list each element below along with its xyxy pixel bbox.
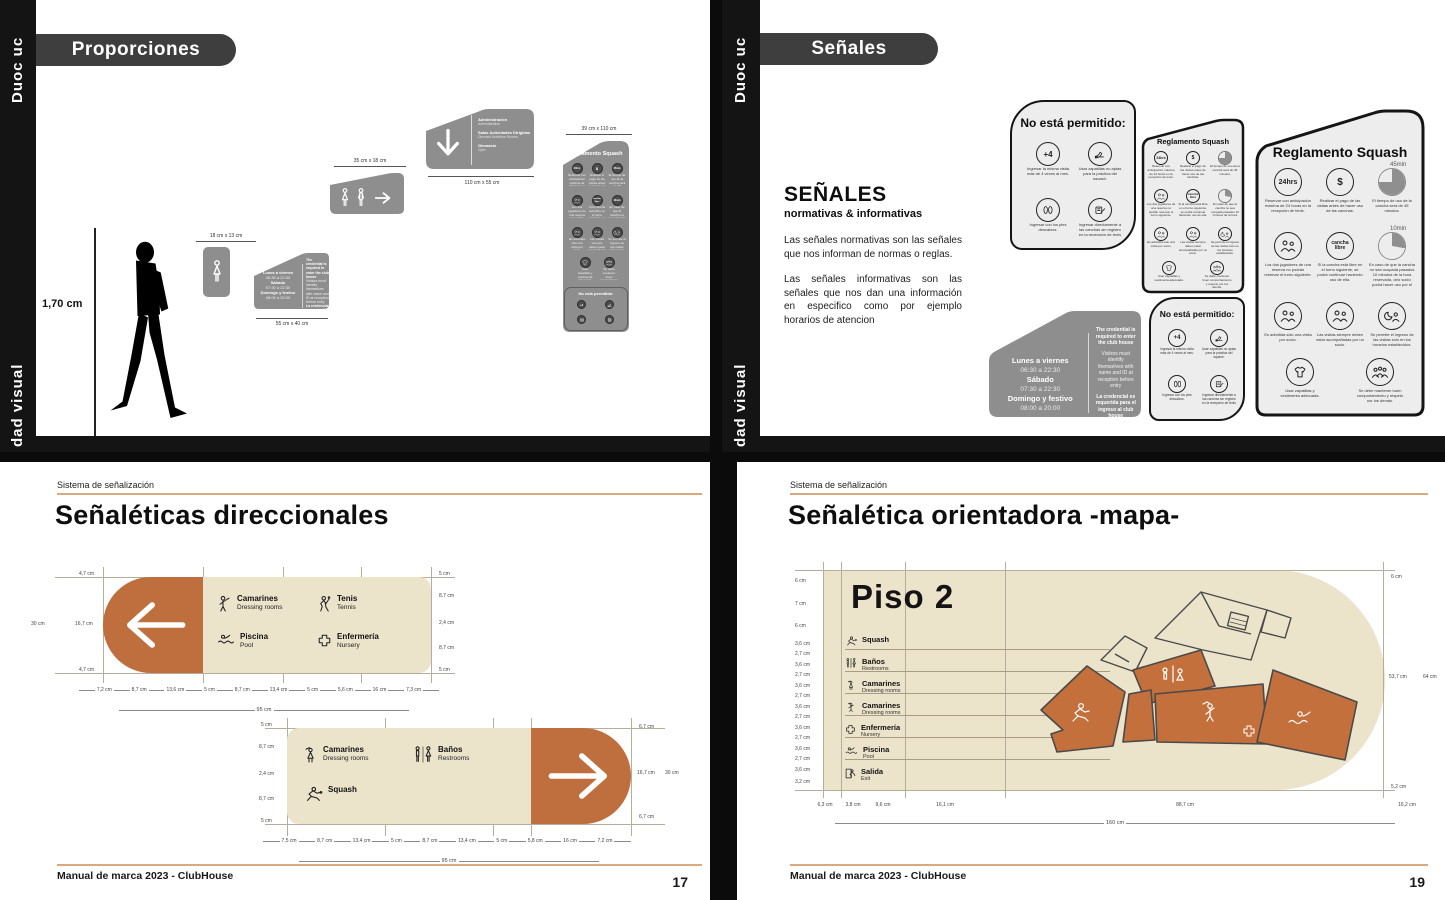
- measurement-label: 3,8 cm: [845, 802, 860, 808]
- rule-caption: Las visitas siempre deben estar acompaña…: [1316, 332, 1364, 347]
- rule-caption: Realizar el pago de las visitas antes de…: [1316, 198, 1364, 213]
- sign-body: [203, 577, 431, 673]
- measurement-label: 4,7 cm: [79, 571, 94, 577]
- sign-title: No está permitido:: [1151, 309, 1243, 319]
- no-entry-unregistered-icon: [1088, 198, 1112, 222]
- exit-icon: [845, 768, 856, 779]
- rule-caption: Ingresar con los pies descalzos.: [1159, 393, 1195, 401]
- sign-title: No está permitido:: [1012, 116, 1134, 130]
- section-rule: [790, 493, 1428, 495]
- no-shoes-icon: [605, 300, 614, 309]
- rule-45min-icon: [1218, 151, 1232, 165]
- block-subtitle: normativas & informativas: [784, 208, 962, 220]
- sign-body: [287, 728, 531, 824]
- measurement-label: 16,2 cm: [1398, 802, 1416, 808]
- directory-item-en: Administration: [478, 122, 532, 126]
- bottom-measurements: 7,5 cm8,7 cm13,4 cm5 cm8,7 cm13,4 cm5 cm…: [263, 838, 631, 844]
- rule-payment-icon: $: [1186, 151, 1200, 165]
- paragraph: Las señales normativas son las señales q…: [784, 234, 962, 261]
- measurement-label: 6,7 cm: [639, 814, 654, 820]
- credential-text: The credential is required to enter the …: [1095, 327, 1136, 347]
- rule-caption: Usar zapatillas y vestimenta adecuada.: [576, 268, 594, 280]
- rule-players-icon: [572, 195, 583, 206]
- measurement-label: 64 cm: [1423, 674, 1437, 680]
- measurement-label: 88,7 cm: [1176, 802, 1194, 808]
- rule-players-icon: [1154, 189, 1168, 203]
- sign-no-permitido-big: No está permitido: +4Ingresar la misma v…: [1010, 100, 1136, 250]
- sign-item-tenis: TenisTennis: [317, 595, 357, 612]
- block-title: SEÑALES: [784, 183, 962, 207]
- rule-attire-icon: [1162, 261, 1176, 275]
- rule-accompany-icon: [592, 227, 603, 238]
- measurement-label: 2,4 cm: [259, 771, 274, 777]
- map-floor-title: Piso 2: [851, 578, 954, 616]
- person-height-label: 1,70 cm: [42, 298, 82, 310]
- sign-reglamento-medium: Reglamento Squash 24hrsReservar con anti…: [1140, 117, 1246, 295]
- rule-caption: Es admitida sólo una visita por socio.: [568, 238, 586, 250]
- no-entry-unregistered-icon: [1210, 375, 1228, 393]
- measurement-label: 5,2 cm: [1391, 784, 1406, 790]
- directory-item-en: Directed Activities Rooms: [478, 135, 532, 139]
- map-sign-diagram: Piso 2 Squash BañosRestrooms CamarinesDr…: [795, 562, 1440, 842]
- rule-caption: Se debe mantener buen comportamiento y r…: [600, 268, 618, 280]
- down-arrow-icon: [434, 125, 462, 163]
- item-label: Tenis: [337, 595, 357, 604]
- page-proporciones: Duoc uc dad visual Proporciones 1,70 cm …: [0, 0, 710, 452]
- sign-schedule-small: Lunes a viernes 06:30 a 22:30 Sábado 07:…: [252, 250, 332, 312]
- legend-label: Enfermería: [861, 724, 900, 732]
- rule-24hrs-icon: 24hrs: [572, 163, 583, 174]
- dimension-label: 110 cm x 55 cm: [444, 180, 520, 186]
- measurement-label: 6 cm: [1391, 574, 1402, 580]
- footer-title: Manual de marca 2023 - ClubHouse: [790, 870, 966, 882]
- rule-caption: El tiempo de uso de la cancha será de 45…: [1210, 165, 1240, 176]
- sign-item-camarines: CamarinesDressing rooms: [217, 595, 283, 612]
- rule-caption: Es admitida sólo una visita por socio.: [1146, 241, 1176, 249]
- rule-caption: Si la cancha está libre en el turno sigu…: [588, 206, 606, 218]
- dimension-label: 18 cm x 13 cm: [196, 233, 256, 242]
- sign-reglamento-large: Reglamento Squash 24hrsReservar con anti…: [1254, 106, 1426, 420]
- rule-caption: Usar zapatillas no aptas para la práctic…: [1078, 166, 1122, 180]
- schedule-time: 08:00 a 20:00: [256, 295, 300, 300]
- sign-no-permitido-small: No está permitido: +4Ingresar la misma v…: [1149, 297, 1245, 421]
- rule-respect-icon: [1366, 358, 1394, 386]
- tennis-icon: [317, 595, 332, 612]
- spine-bar: Duoc uc dad visual: [0, 0, 36, 452]
- no-plus4-icon: +4: [1036, 142, 1060, 166]
- dressing-icon: [845, 680, 857, 690]
- section-header-tab: Señales: [760, 33, 938, 65]
- measurement-label: 8,7 cm: [259, 744, 274, 750]
- rule-caption: Si la cancha está libre en el turno sigu…: [1316, 262, 1364, 282]
- rule-hours-icon: [1218, 227, 1232, 241]
- schedule-day: Lunes a viernes: [996, 356, 1084, 366]
- rule-visit-icon: [1154, 227, 1168, 241]
- arrow-panel: [103, 577, 203, 673]
- floor-line: [760, 436, 1445, 452]
- item-label: Squash: [328, 786, 357, 795]
- room-small: [1123, 690, 1155, 742]
- rule-players-icon: [1274, 232, 1302, 260]
- squash-icon: [845, 636, 857, 646]
- rule-24hrs-icon: 24hrs: [1274, 168, 1302, 196]
- dressing-icon: [845, 702, 857, 712]
- legend-sublabel: Pool: [863, 754, 889, 760]
- pool-icon: [217, 633, 235, 645]
- directory-item-en: Gym: [478, 148, 532, 152]
- dimension-rule: [428, 176, 534, 177]
- brand-logo-vertical: Duoc uc: [9, 8, 26, 103]
- no-barefoot-icon: [1168, 375, 1186, 393]
- measurement-label: 30 cm: [31, 621, 45, 627]
- rule-caption: Ingresar la misma visita más de 4 veces …: [1159, 347, 1195, 355]
- no-plus4-icon: +4: [1168, 329, 1186, 347]
- rule-caption: Si la cancha está libre en el turno sigu…: [1178, 203, 1208, 217]
- floor-line: [36, 436, 710, 452]
- breadcrumb: Sistema de señalización: [57, 480, 154, 490]
- spine-text: dad visual: [732, 355, 749, 447]
- measurement-label: 16,7 cm: [75, 621, 93, 627]
- schedule-time: 07:30 a 22:30: [996, 385, 1084, 394]
- dressing-icon: [217, 595, 232, 612]
- rule-cancha-libre-icon: cancha libre: [1186, 189, 1200, 203]
- section-header-label: Proporciones: [72, 39, 200, 61]
- directional-sign-1-diagram: CamarinesDressing rooms TenisTennis Pisc…: [55, 565, 475, 725]
- dressing-icon: [303, 746, 318, 763]
- measurement-label: 6,3 cm: [817, 802, 832, 808]
- measurement-label: 53,7 cm: [1389, 674, 1407, 680]
- sign-item-piscina: PiscinaPool: [217, 633, 268, 649]
- item-label: Piscina: [240, 633, 268, 642]
- footer-title: Manual de marca 2023 - ClubHouse: [57, 870, 233, 882]
- rule-hours-icon: [1378, 302, 1406, 330]
- intro-text-block: SEÑALES normativas & informativas Las se…: [784, 183, 962, 327]
- sign-women: [203, 247, 230, 297]
- room-camarines: [1155, 684, 1267, 744]
- rule-caption: Ingresar la misma visita más de 4 veces …: [1026, 166, 1070, 176]
- rule-caption: Ingresar directamente a las canchas sin …: [1078, 222, 1122, 236]
- rule-caption: Se debe mantener buen comportamiento y r…: [1202, 275, 1232, 289]
- item-sublabel: Dressing rooms: [237, 604, 283, 611]
- measurement-label: 5 cm: [261, 818, 272, 824]
- rule-payment-icon: $: [1326, 168, 1354, 196]
- spine-bar: Duoc uc dad visual: [722, 0, 760, 452]
- height-reference-line: [94, 228, 96, 436]
- rule-caption: En caso de que la cancha no sea ocupada …: [608, 206, 626, 218]
- left-measurements: 6 cm 7 cm 6 cm 3,6 cm 2,7 cm 3,6 cm 2,7 …: [795, 570, 821, 787]
- measurement-label: 16,1 cm: [936, 802, 954, 808]
- measurement-label: 8,7 cm: [439, 645, 454, 651]
- rule-accompany-icon: [1186, 227, 1200, 241]
- legend-label: Squash: [862, 636, 889, 644]
- breadcrumb: Sistema de señalización: [790, 480, 887, 490]
- measurement-label: 5 cm: [261, 722, 272, 728]
- measurement-label: 6,7 cm: [639, 724, 654, 730]
- rule-caption: El tiempo de uso de la cancha será de 45…: [1368, 198, 1416, 213]
- no-barefoot-icon: [1036, 198, 1060, 222]
- medical-cross-icon: [845, 724, 856, 735]
- no-permitido-panel: No está permitido: +4: [564, 287, 628, 331]
- rule-caption: En caso de que la cancha no sea ocupada …: [1368, 262, 1416, 288]
- no-barefoot-icon: [577, 315, 586, 324]
- measurement-label: 2,4 cm: [439, 620, 454, 626]
- measurement-label: 9,6 cm: [875, 802, 890, 808]
- brand-logo-vertical: Duoc uc: [732, 8, 749, 103]
- page-title: Señaléticas direccionales: [55, 500, 389, 531]
- floor-plan: [1005, 574, 1373, 779]
- schedule-day: Sábado: [996, 375, 1084, 385]
- schedule-mini-left: Lunes a viernes 06:30 a 22:30 Sábado 07:…: [252, 250, 302, 312]
- item-sublabel: Pool: [240, 642, 268, 649]
- rule-caption: Reservar con anticipación máxima de 24 h…: [1264, 198, 1312, 213]
- rule-caption: Ingresar directamente a las canchas sin …: [1201, 393, 1237, 405]
- bottom-measurements: 7,2 cm8,7 cm13,6 cm5 cm8,7 cm13,4 cm5 cm…: [79, 687, 439, 693]
- item-sublabel: Dressing rooms: [323, 755, 369, 762]
- measurement-label: 5 cm: [439, 667, 450, 673]
- footer-rule: [57, 864, 702, 866]
- person-silhouette: [103, 224, 193, 438]
- credential-text: La credencial es requerida para el ingre…: [1095, 394, 1136, 420]
- measurement-label: 8,7 cm: [259, 796, 274, 802]
- rule-accompany-icon: [1326, 302, 1354, 330]
- rule-10min-icon: [1218, 189, 1232, 203]
- section-header-label: Señales: [811, 38, 886, 60]
- section-rule: [57, 493, 702, 495]
- rule-hours-icon: [612, 227, 623, 238]
- rule-visit-icon: [572, 227, 583, 238]
- legend-sublabel: Exit: [861, 776, 883, 782]
- rule-cancha-libre-icon: cancha libre: [1326, 232, 1354, 260]
- measurement-label: 4,7 cm: [79, 667, 94, 673]
- woman-icon: [211, 260, 223, 284]
- schedule-time: 06:30 a 22:30: [996, 366, 1084, 375]
- wc-icon: [413, 746, 433, 763]
- rule-caption: Usar zapatillas no aptas para la práctic…: [1201, 347, 1237, 359]
- panel-title: No está permitido:: [565, 291, 627, 296]
- rule-caption: Los dos jugadores de una reserva no podr…: [568, 206, 586, 218]
- room-squash: [1041, 666, 1125, 752]
- section-header-tab: Proporciones: [36, 34, 236, 66]
- dimension-label: 39 cm x 110 cm: [566, 126, 632, 135]
- item-label: Camarines: [237, 595, 283, 604]
- measurement-label: 8,7 cm: [439, 593, 454, 599]
- credential-text: Visitors must identify themselves with n…: [306, 279, 329, 304]
- credential-text: La credencial es requerida para el ingre…: [306, 304, 329, 312]
- arrow-panel: [531, 728, 631, 824]
- woman-icon: [340, 188, 350, 208]
- dimension-label: 35 cm x 18 cm: [334, 158, 406, 167]
- no-shoes-icon: [1088, 142, 1112, 166]
- rule-caption: Reservar con anticipación máxima de 24 h…: [1146, 165, 1176, 179]
- rule-caption: Los dos jugadores de una reserva no podr…: [1146, 203, 1176, 217]
- rule-10min-icon: 10min: [612, 195, 623, 206]
- sign-item-camarines: CamarinesDressing rooms: [303, 746, 369, 763]
- rule-caption: Las visitas siempre deben estar acompaña…: [1178, 241, 1208, 255]
- no-plus4-icon: +4: [577, 300, 586, 309]
- sign-title: Reglamento Squash: [560, 151, 632, 157]
- credential-text: The credential is required to enter the …: [306, 258, 329, 279]
- rule-caption: Realizar el pago de las visitas antes de…: [588, 174, 606, 186]
- rule-45min-pie-icon: [1378, 168, 1406, 196]
- wc-room-icon: [1163, 666, 1183, 682]
- rule-caption: Reservar con anticipación máxima de 24 h…: [568, 174, 586, 186]
- rule-24hrs-icon: 24hrs: [1154, 151, 1168, 165]
- right-arrow-icon: [545, 746, 617, 806]
- legend-sublabel: Restrooms: [862, 666, 889, 672]
- legend-sublabel: Dressing rooms: [862, 688, 901, 694]
- sign-schedule-dark: Lunes a viernes 06:30 a 22:30 Sábado 07:…: [986, 307, 1144, 421]
- rule-10min-pie-icon: [1378, 232, 1406, 260]
- divider: [1088, 333, 1089, 413]
- measurement-label: 30 cm: [665, 770, 679, 776]
- item-label: Camarines: [323, 746, 369, 755]
- no-shoes-icon: [1210, 329, 1228, 347]
- rule-respect-icon: [1210, 261, 1224, 275]
- squash-icon: [303, 786, 323, 802]
- legend-label: Baños: [862, 658, 889, 666]
- rule-respect-icon: [604, 257, 615, 268]
- rule-payment-icon: $: [592, 163, 603, 174]
- page-number: 17: [672, 874, 688, 890]
- item-label: Enfermería: [337, 633, 379, 642]
- page-senales: Duoc uc dad visual Señales SEÑALES norma…: [722, 0, 1445, 452]
- rule-caption: Se debe mantener buen comportamiento y r…: [1356, 388, 1404, 402]
- dimension-label: 55 cm x 40 cm: [256, 318, 328, 327]
- rule-caption: Usar zapatillas y vestimenta adecuada.: [1154, 275, 1184, 283]
- legend-sublabel: Dressing rooms: [862, 710, 901, 716]
- wc-icon: [845, 658, 857, 668]
- rule-caption: Ingresar con los pies descalzos.: [1026, 222, 1070, 232]
- page-title: Señalética orientadora -mapa-: [788, 500, 1179, 531]
- legend-sublabel: Nursery: [861, 732, 900, 738]
- paragraph: Las señales informativas son las señales…: [784, 273, 962, 327]
- total-measurement: 95 cm: [119, 707, 409, 713]
- rule-attire-icon: [1286, 358, 1314, 386]
- credential-block: The credential is required to enter the …: [1093, 307, 1144, 421]
- rule-45min-icon: 45min: [612, 163, 623, 174]
- item-sublabel: Tennis: [337, 604, 357, 611]
- rule-caption: Se permite el ingreso de las visitas sól…: [608, 238, 626, 250]
- total-measurement: 160 cm: [835, 820, 1395, 826]
- schedule-day: Domingo y festivo: [996, 394, 1084, 404]
- legend-label: Salida: [861, 768, 883, 776]
- directional-sign-2-diagram: CamarinesDressing rooms BañosRestrooms S…: [255, 714, 685, 874]
- sign-item-enfermeria: EnfermeríaNursery: [317, 633, 379, 649]
- medical-cross-icon: [317, 633, 332, 648]
- manual-spread: Duoc uc dad visual Proporciones 1,70 cm …: [0, 0, 1445, 900]
- man-icon: [356, 188, 366, 208]
- legend-label: Camarines: [862, 702, 901, 710]
- schedule-time: 08:00 a 20:00: [996, 404, 1084, 413]
- sign-item-squash: Squash: [303, 786, 357, 802]
- schedule-block: Lunes a viernes 06:30 a 22:30 Sábado 07:…: [986, 307, 1084, 421]
- right-arrow-icon: [372, 190, 394, 206]
- legend-label: Piscina: [863, 746, 889, 754]
- no-entry-unregistered-icon: [605, 315, 614, 324]
- pool-icon: [845, 746, 858, 755]
- sign-title: Reglamento Squash: [1140, 137, 1246, 146]
- schedule-mini-right: The credential is required to enter the …: [303, 250, 332, 312]
- rule-caption: Se permite el ingreso de las visitas sól…: [1210, 241, 1240, 255]
- rule-caption: El tiempo de uso de la cancha será de 45…: [608, 174, 626, 186]
- sign-wc-arrow: [328, 171, 406, 216]
- rule-caption: Los dos jugadores de una reserva no podr…: [1264, 262, 1312, 277]
- rule-caption: En caso de que la cancha no sea ocupada …: [1210, 203, 1240, 217]
- measurement-label: 16,7 cm: [637, 770, 655, 776]
- rule-cancha-libre-icon: cancha libre: [592, 195, 603, 206]
- rule-visit-icon: [1274, 302, 1302, 330]
- sign-item-banos: BañosRestrooms: [413, 746, 469, 763]
- page-mapa: Sistema de señalización Señalética orien…: [737, 462, 1445, 900]
- sign-title: Reglamento Squash: [1254, 144, 1426, 160]
- item-sublabel: Nursery: [337, 642, 379, 649]
- credential-text: Visitors must identify themselves with n…: [1095, 351, 1136, 390]
- measurement-label: 5 cm: [439, 571, 450, 577]
- rule-caption: Realizar el pago de las visitas antes de…: [1178, 165, 1208, 179]
- legend-label: Camarines: [862, 680, 901, 688]
- sign-directory: Administración Administration Salas Acti…: [424, 107, 536, 171]
- rule-caption: Usar zapatillas y vestimenta adecuada.: [1276, 388, 1324, 398]
- sign-reglamento-tall: Reglamento Squash 24hrsReservar con anti…: [560, 139, 632, 335]
- rule-caption: Las visitas siempre deben estar acompaña…: [588, 238, 606, 250]
- page-number: 19: [1409, 874, 1425, 890]
- rule-caption: Se permite el ingreso de las visitas sól…: [1368, 332, 1416, 347]
- page-direccionales: Sistema de señalización Señaléticas dire…: [0, 462, 710, 900]
- spine-text: dad visual: [9, 355, 26, 447]
- left-arrow-icon: [117, 595, 189, 655]
- item-sublabel: Restrooms: [438, 755, 469, 762]
- item-label: Baños: [438, 746, 469, 755]
- rule-caption: Es admitida sólo una visita por socio.: [1264, 332, 1312, 342]
- footer-rule: [790, 864, 1428, 866]
- rule-attire-icon: [580, 257, 591, 268]
